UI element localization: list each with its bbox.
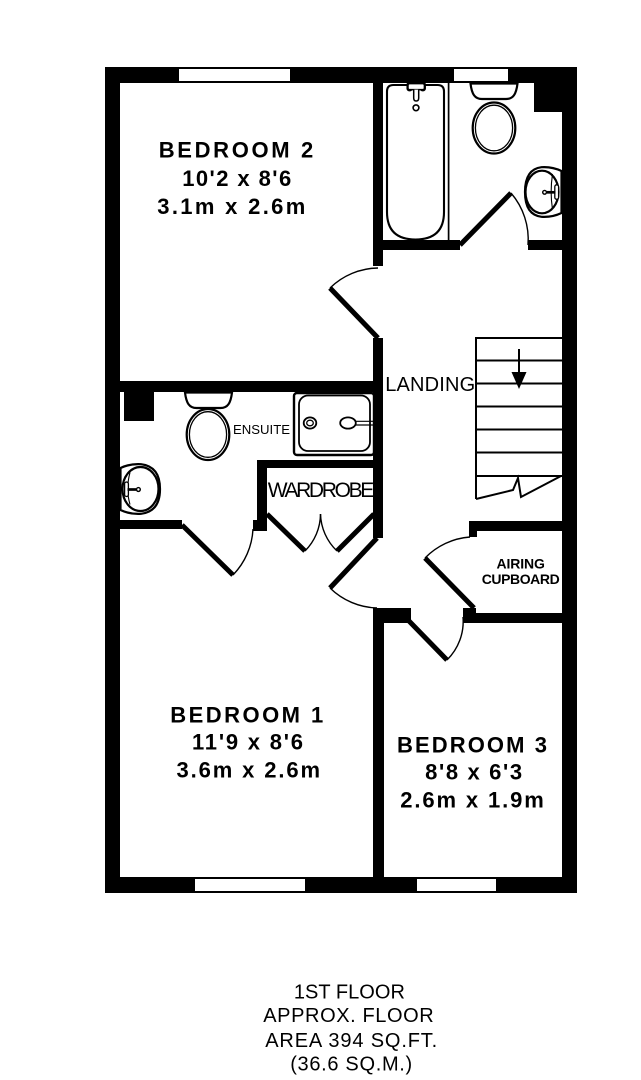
svg-text:3.1m x 2.6m: 3.1m x 2.6m bbox=[157, 194, 305, 219]
svg-text:10'2 x 8'6: 10'2 x 8'6 bbox=[182, 166, 291, 191]
svg-text:3.6m x 2.6m: 3.6m x 2.6m bbox=[177, 758, 320, 783]
svg-text:LANDING: LANDING bbox=[385, 374, 475, 396]
svg-text:11'9 x 8'6: 11'9 x 8'6 bbox=[192, 730, 303, 755]
svg-text:APPROX. FLOOR: APPROX. FLOOR bbox=[263, 1005, 434, 1027]
svg-text:BEDROOM 3: BEDROOM 3 bbox=[397, 733, 547, 758]
svg-text:ENSUITE: ENSUITE bbox=[233, 422, 290, 437]
svg-text:CUPBOARD: CUPBOARD bbox=[482, 571, 560, 587]
svg-text:AREA 394 SQ.FT.: AREA 394 SQ.FT. bbox=[265, 1030, 437, 1052]
svg-text:BEDROOM 2: BEDROOM 2 bbox=[159, 138, 314, 163]
svg-text:1ST FLOOR: 1ST FLOOR bbox=[294, 982, 405, 1004]
svg-text:BEDROOM 1: BEDROOM 1 bbox=[170, 703, 323, 728]
svg-text:(36.6 SQ.M.): (36.6 SQ.M.) bbox=[290, 1054, 412, 1076]
svg-text:WARDROBE: WARDROBE bbox=[268, 479, 375, 502]
svg-text:AIRING: AIRING bbox=[496, 556, 545, 572]
svg-text:2.6m x 1.9m: 2.6m x 1.9m bbox=[400, 788, 544, 813]
svg-text:8'8 x 6'3: 8'8 x 6'3 bbox=[425, 760, 522, 785]
